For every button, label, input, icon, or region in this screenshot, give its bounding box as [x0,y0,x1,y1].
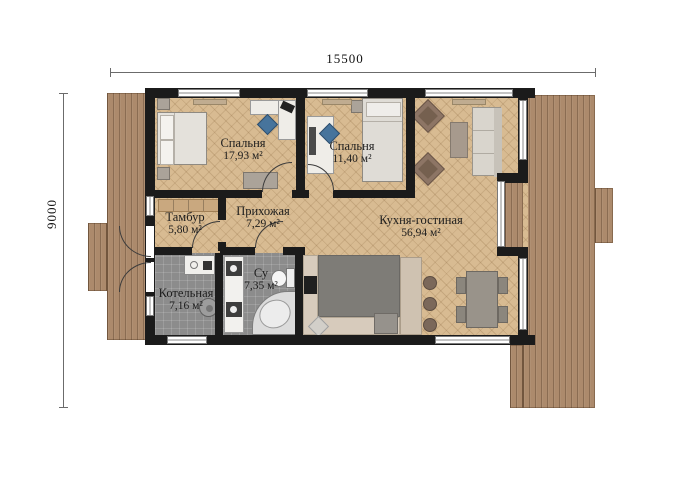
pillow [160,115,174,140]
sofa [472,107,501,176]
dimension-tick [595,68,596,77]
wall-bedroom2-hall [333,190,415,198]
blanket-line [174,113,175,164]
floor-plan: 15500 9000 [0,0,679,480]
blanket-line [363,121,402,122]
deck-right [523,95,595,408]
window-living-top [425,89,513,97]
cooktop [304,276,317,294]
boiler-unit [184,255,215,275]
room-label-bathroom: Су 7,35 м² [244,266,278,294]
washing-machine [226,261,242,276]
deck-left [107,93,150,340]
room-area: 56,94 м² [379,228,463,241]
washer-door [230,265,237,272]
dining-chair [456,277,466,294]
radiator [322,99,352,105]
coffee-table [450,122,468,158]
bar-stool [423,297,437,311]
dryer [226,302,242,317]
wall-bedroom1-hall [155,190,262,198]
room-area: 7,29 м² [236,219,290,232]
window-boiler-left [146,296,154,316]
computer-monitor [309,127,316,155]
wall-boiler-bath [215,253,223,337]
sofa-back [494,108,502,177]
dining-chair [498,306,508,323]
dimension-height-label: 9000 [44,199,60,229]
boiler-panel [203,261,212,270]
room-name: Котельная [159,286,214,300]
armchair-seat [418,106,438,126]
wall-bedroom2-living [406,98,415,198]
dimension-line-left [63,93,64,408]
room-name: Спальня [329,139,374,153]
deck-right-step [595,188,613,243]
window-tambour [146,196,154,216]
window-boiler [167,336,207,344]
room-area: 17,93 м² [220,151,265,164]
deck-left-step [88,223,107,291]
dining-table [466,271,498,328]
room-name: Кухня-гостиная [379,213,463,227]
window-bedroom2 [307,89,368,97]
kitchen-sink [374,313,398,334]
pillow [160,140,174,165]
boiler-dial [190,261,198,269]
wall-bath-kitchen [295,253,303,337]
room-name: Су [244,266,278,280]
room-name: Тамбур [165,210,204,224]
dimension-tick [59,407,68,408]
window-living-right-upper [519,100,527,160]
nightstand [157,98,170,110]
wall-recess-bottom [497,247,528,256]
sofa-cushion-line [473,153,494,154]
room-label-hallway: Прихожая 7,29 м² [236,204,290,232]
window-recess [497,181,505,247]
wall-bedrooms-divider [296,98,305,190]
radiator [452,99,486,105]
dimension-line-top [110,72,596,73]
radiator [193,99,227,105]
deck-bottom [510,345,523,408]
room-name: Прихожая [236,204,290,218]
deck-right-recess [505,181,523,249]
room-label-kitchen-living: Кухня-гостиная 56,94 м² [379,213,463,241]
room-label-boiler-room: Котельная 7,16 м² [159,286,214,314]
bar-counter [400,257,422,335]
wall-tambour-hall-upper [218,198,226,220]
room-label-tambour: Тамбур 5,80 м² [165,210,204,238]
dimension-width-label: 15500 [326,51,364,67]
window-dining-right [519,258,527,330]
double-bed [157,112,207,165]
pillow [366,102,401,117]
window-dining-bottom [435,336,510,344]
dimension-tick [59,93,68,94]
dryer-door [230,306,237,313]
bar-stool [423,276,437,290]
wall-segment [292,190,309,198]
room-label-bedroom-1: Спальня 17,93 м² [220,136,265,164]
kitchen-island [318,255,400,317]
nightstand [157,167,170,180]
dimension-tick [110,68,111,77]
sofa-cushion-line [473,130,494,131]
room-area: 11,40 м² [329,154,374,167]
room-label-bedroom-2: Спальня 11,40 м² [329,139,374,167]
room-area: 7,35 м² [244,281,278,294]
room-area: 7,16 м² [159,301,214,314]
room-name: Спальня [220,136,265,150]
dining-chair [456,306,466,323]
toilet-tank [286,268,295,288]
room-area: 5,80 м² [165,225,204,238]
window-bedroom1 [178,89,240,97]
dining-chair [498,277,508,294]
armchair-seat [418,159,438,179]
bar-stool [423,318,437,332]
